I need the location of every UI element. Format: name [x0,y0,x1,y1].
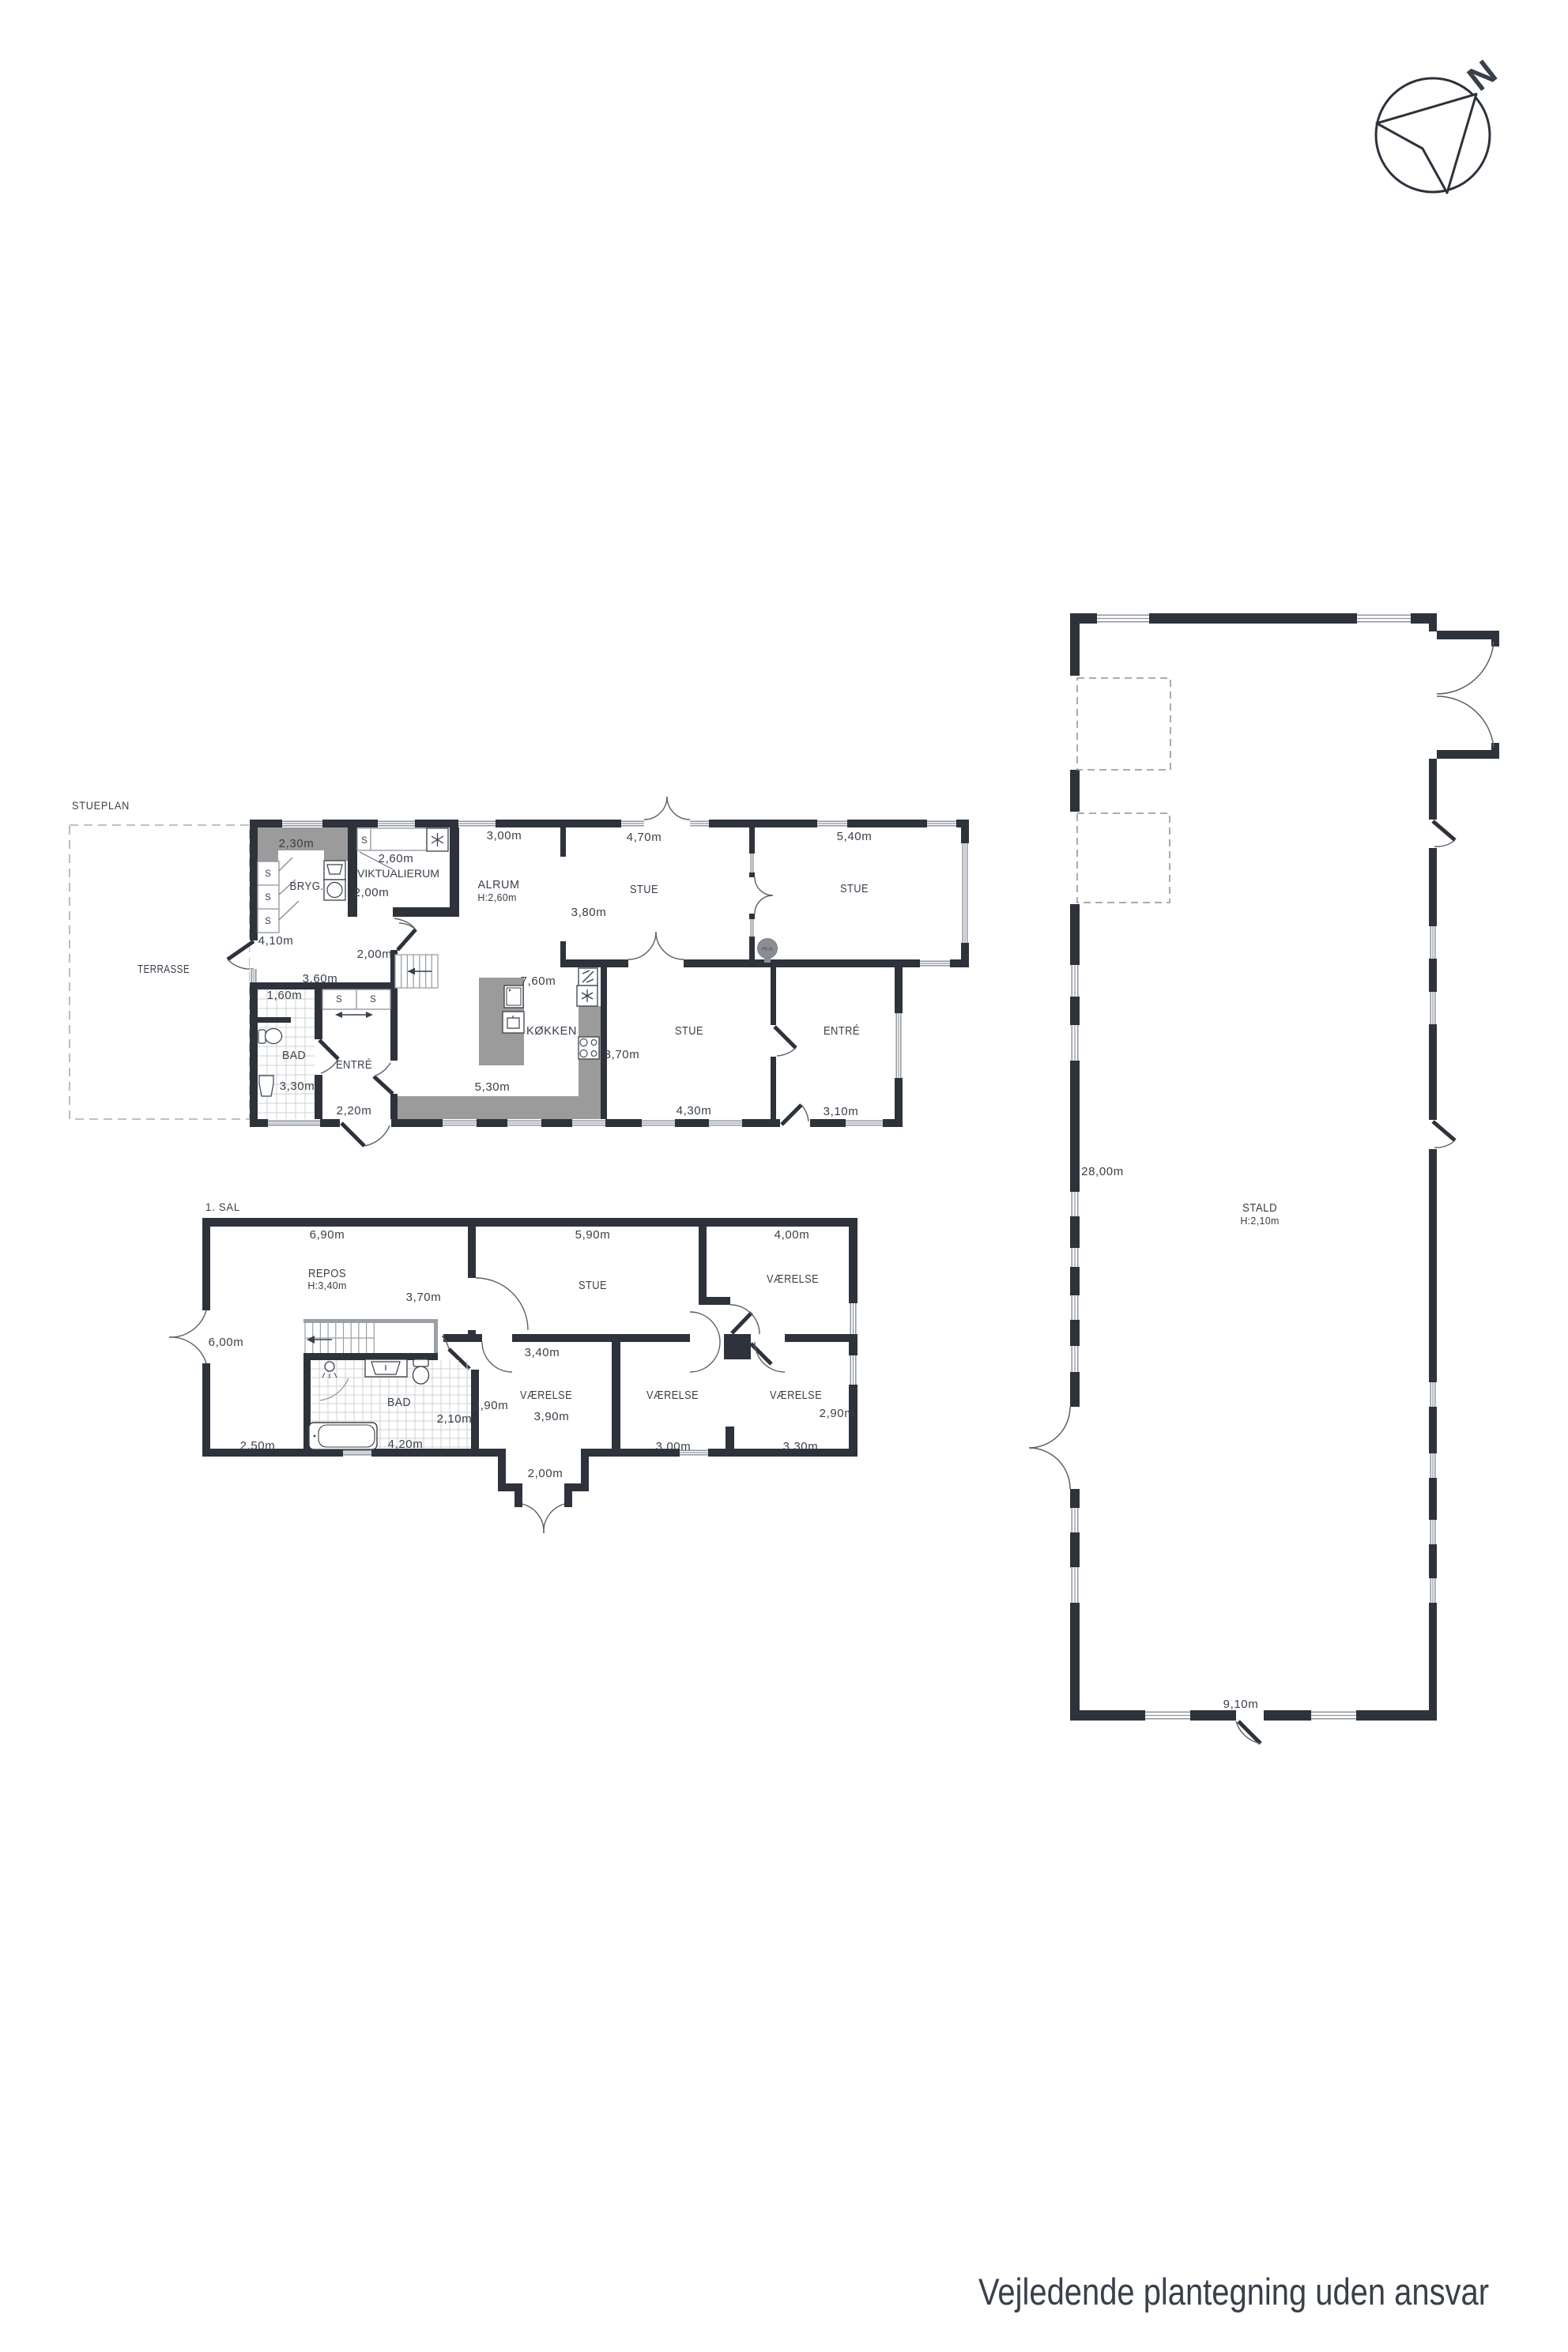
svg-text:4,20m: 4,20m [388,1438,424,1451]
svg-text:4,10m: 4,10m [258,934,294,948]
svg-text:3,10m: 3,10m [824,1105,859,1118]
svg-text:5,40m: 5,40m [837,830,873,843]
svg-text:ENTRÉ: ENTRÉ [336,1058,372,1072]
svg-text:S: S [361,836,367,846]
svg-text:STUE: STUE [630,884,658,896]
svg-text:3,70m: 3,70m [605,1048,640,1061]
svg-text:2,20m: 2,20m [337,1104,372,1118]
svg-text:1. SAL: 1. SAL [205,1201,240,1213]
svg-text:BRYG.: BRYG. [290,880,324,893]
svg-text:H:2,60m: H:2,60m [477,892,516,903]
svg-text:4,70m: 4,70m [627,831,662,844]
svg-text:PEJS: PEJS [762,948,773,952]
svg-text:STUE: STUE [840,883,869,895]
svg-text:28,00m: 28,00m [1081,1165,1124,1178]
svg-text:5,90m: 5,90m [575,1228,611,1242]
svg-text:TERRASSE: TERRASSE [138,963,190,976]
svg-text:9,10m: 9,10m [1223,1698,1259,1711]
svg-text:ENTRÉ: ENTRÉ [824,1024,860,1038]
svg-text:S: S [265,893,271,903]
svg-text:STUE: STUE [579,1280,607,1292]
svg-text:1,60m: 1,60m [267,989,303,1002]
svg-text:3,00m: 3,00m [487,829,522,842]
svg-text:H:3,40m: H:3,40m [307,1280,346,1291]
svg-text:BAD: BAD [282,1050,306,1062]
svg-text:2,60m: 2,60m [379,852,414,865]
svg-text:S: S [265,869,271,879]
svg-text:3,70m: 3,70m [406,1291,442,1304]
svg-text:3,30m: 3,30m [783,1440,819,1453]
svg-text:S: S [265,917,271,926]
svg-text:3,40m: 3,40m [525,1346,560,1359]
svg-text:Vejledende plantegning uden an: Vejledende plantegning uden ansvar [978,2271,1489,2312]
svg-text:3,90m: 3,90m [534,1410,570,1423]
svg-text:VÆRELSE: VÆRELSE [770,1389,822,1402]
svg-text:2,00m: 2,00m [528,1467,563,1480]
svg-text:2,10m: 2,10m [437,1412,473,1426]
svg-text:4,00m: 4,00m [775,1228,810,1242]
svg-text:4,30m: 4,30m [677,1104,712,1118]
svg-text:3,30m: 3,30m [280,1080,315,1093]
svg-text:STUE: STUE [675,1025,703,1038]
svg-text:2,30m: 2,30m [279,837,315,850]
svg-text:ALRUM: ALRUM [478,879,520,891]
svg-text:2,90m: 2,90m [473,1399,509,1412]
svg-text:KØKKEN: KØKKEN [526,1025,577,1038]
svg-text:S: S [336,995,342,1004]
svg-text:3,80m: 3,80m [571,906,607,919]
svg-text:REPOS: REPOS [308,1268,346,1280]
svg-text:VÆRELSE: VÆRELSE [646,1389,699,1402]
svg-text:3,60m: 3,60m [303,972,338,986]
svg-text:BAD: BAD [387,1396,411,1409]
svg-text:VIKTUALIERUM: VIKTUALIERUM [357,867,439,880]
svg-text:2,00m: 2,00m [354,886,390,899]
svg-text:H:2,10m: H:2,10m [1240,1216,1279,1227]
svg-text:2,90m: 2,90m [820,1407,855,1420]
svg-text:3,00m: 3,00m [656,1440,692,1453]
svg-text:VÆRELSE: VÆRELSE [520,1389,572,1402]
svg-text:6,90m: 6,90m [310,1228,345,1242]
svg-text:S: S [370,995,376,1004]
svg-text:STUEPLAN: STUEPLAN [72,800,130,812]
svg-text:7,60m: 7,60m [521,974,556,988]
svg-text:5,30m: 5,30m [475,1080,511,1094]
svg-text:STALD: STALD [1242,1202,1277,1215]
svg-text:2,00m: 2,00m [357,948,393,961]
svg-text:6,00m: 6,00m [209,1336,244,1349]
svg-text:2,50m: 2,50m [240,1439,276,1453]
svg-text:VÆRELSE: VÆRELSE [767,1273,819,1286]
